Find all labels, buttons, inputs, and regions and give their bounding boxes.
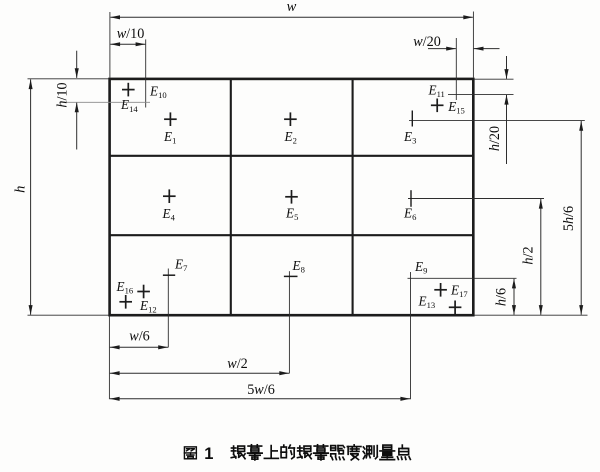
svg-text:w/2: w/2: [227, 356, 248, 372]
svg-text:E3: E3: [403, 129, 416, 146]
svg-text:E15: E15: [447, 99, 465, 116]
svg-text:E10: E10: [149, 84, 167, 101]
svg-text:5w/6: 5w/6: [247, 382, 275, 398]
svg-text:h/2: h/2: [521, 246, 537, 264]
svg-text:E8: E8: [292, 258, 305, 275]
svg-text:5h/6: 5h/6: [561, 206, 577, 231]
svg-text:E2: E2: [284, 129, 297, 146]
svg-text:w/10: w/10: [117, 26, 145, 42]
svg-text:h/10: h/10: [55, 82, 71, 107]
svg-text:E7: E7: [174, 257, 188, 274]
svg-text:h/20: h/20: [487, 126, 503, 151]
svg-text:E13: E13: [418, 293, 436, 310]
svg-text:E6: E6: [403, 206, 417, 223]
svg-text:w/20: w/20: [413, 34, 441, 50]
svg-text:E4: E4: [162, 206, 176, 223]
svg-text:1: 1: [204, 445, 213, 463]
svg-text:w: w: [287, 0, 297, 15]
svg-text:h/6: h/6: [494, 288, 510, 306]
svg-text:E12: E12: [139, 298, 157, 315]
svg-text:h: h: [13, 186, 29, 193]
svg-text:E16: E16: [116, 279, 134, 296]
svg-text:E11: E11: [428, 83, 445, 100]
svg-text:E5: E5: [285, 206, 298, 223]
svg-text:E17: E17: [450, 282, 468, 299]
svg-text:E9: E9: [414, 259, 427, 276]
svg-text:w/6: w/6: [129, 329, 150, 345]
svg-text:E14: E14: [120, 97, 138, 114]
svg-text:E1: E1: [163, 129, 176, 146]
